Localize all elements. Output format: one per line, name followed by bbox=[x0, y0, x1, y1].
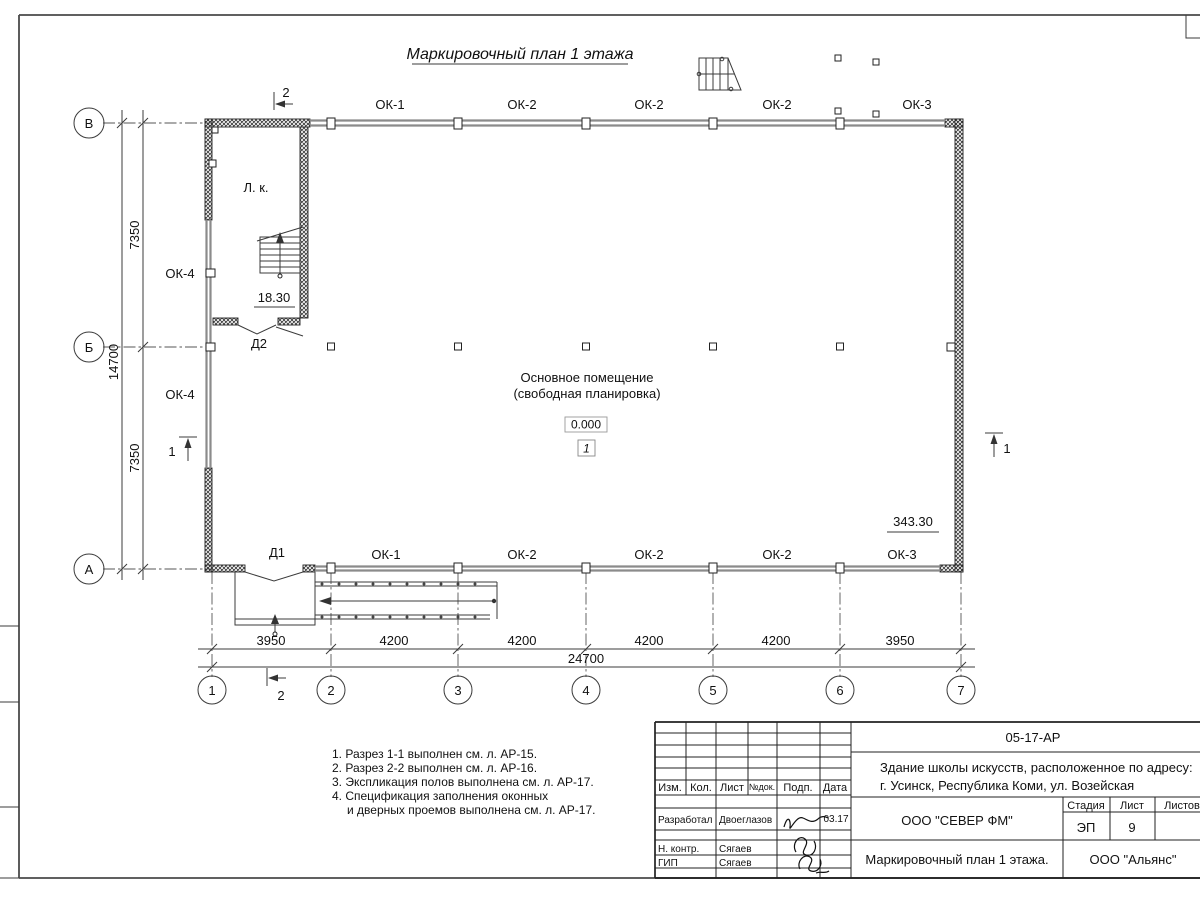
entrance-ramp bbox=[315, 582, 497, 619]
svg-text:В: В bbox=[85, 116, 94, 131]
section-mark-1-left: 1 bbox=[168, 437, 197, 461]
svg-text:1: 1 bbox=[168, 444, 175, 459]
tb-sheet-label: Лист bbox=[1120, 800, 1144, 812]
label-ok-top-3: ОК-2 bbox=[634, 97, 663, 112]
axis-bubble-b: Б bbox=[74, 332, 104, 362]
tb-sheet-value: 9 bbox=[1128, 820, 1135, 835]
tb-role-gip: ГИП bbox=[658, 858, 678, 869]
label-door-d2: Д2 bbox=[251, 336, 267, 351]
tb-contractor: ООО "Альянс" bbox=[1090, 852, 1177, 867]
room-label: Основное помещение (свободная планировка… bbox=[513, 370, 660, 456]
label-ok-top-1: ОК-1 bbox=[375, 97, 404, 112]
notes-block: 1. Разрез 1-1 выполнен см. л. АР-15. 2. … bbox=[332, 747, 595, 817]
label-stair-cage: Л. к. bbox=[243, 180, 268, 195]
tb-date-developer: 03.17 bbox=[823, 814, 848, 825]
dim-h-1: 3950 bbox=[257, 633, 286, 648]
dim-h-total: 24700 bbox=[568, 651, 604, 666]
wall-bottom-jamb bbox=[303, 565, 315, 572]
dim-7350-bottom: 7350 bbox=[127, 444, 142, 473]
label-ok4-lower: ОК-4 bbox=[165, 387, 194, 402]
note-3: 3. Экспликация полов выполнена см. л. АР… bbox=[332, 775, 594, 789]
label-ok-top-2: ОК-2 bbox=[507, 97, 536, 112]
room-number: 1 bbox=[583, 442, 590, 456]
glazing-top bbox=[310, 121, 945, 126]
tb-sheets-label: Листов bbox=[1164, 800, 1200, 812]
canopy-posts bbox=[835, 55, 879, 117]
entrance-porch bbox=[235, 572, 315, 636]
dim-h-3: 4200 bbox=[508, 633, 537, 648]
axis-bubble-7: 7 bbox=[947, 676, 975, 704]
svg-text:18.30: 18.30 bbox=[258, 290, 291, 305]
svg-text:6: 6 bbox=[836, 683, 843, 698]
wall-left-upper bbox=[205, 119, 212, 220]
tb-name-developer: Двоеглазов bbox=[719, 815, 772, 826]
v-dim-lines bbox=[122, 110, 143, 580]
ramp-arrow-icon bbox=[319, 597, 331, 605]
svg-text:1: 1 bbox=[1003, 441, 1010, 456]
svg-text:А: А bbox=[85, 562, 94, 577]
drawing-sheet: Маркировочный план 1 этажа В Б А 1 2 3 4… bbox=[0, 0, 1200, 900]
section-1-right-arrow-icon bbox=[991, 434, 998, 444]
section-2-top-arrow-icon bbox=[275, 101, 285, 108]
stair-bottom-wall-left bbox=[213, 318, 238, 325]
svg-text:343.30: 343.30 bbox=[893, 514, 933, 529]
door-d1-swing bbox=[245, 572, 303, 581]
title-block: Изм. Кол. Лист №док. Подп. Дата Разработ… bbox=[655, 722, 1200, 878]
note-5: и дверных проемов выполнена см. л. АР-17… bbox=[347, 803, 595, 817]
svg-text:Б: Б bbox=[85, 340, 94, 355]
tb-col-podp: Подп. bbox=[783, 782, 812, 794]
label-ok4-upper: ОК-4 bbox=[165, 266, 194, 281]
dim-7350-top: 7350 bbox=[127, 221, 142, 250]
note-4: 4. Спецификация заполнения оконных bbox=[332, 789, 548, 803]
dim-14700: 14700 bbox=[106, 344, 121, 380]
wall-left-lower bbox=[205, 468, 212, 572]
tb-col-ndok: №док. bbox=[749, 782, 775, 792]
tb-project-line1: Здание школы искусств, расположенное по … bbox=[880, 760, 1193, 775]
svg-text:2: 2 bbox=[282, 85, 289, 100]
section-mark-1-right: 1 bbox=[985, 433, 1011, 457]
tb-doc-code: 05-17-АР bbox=[1006, 730, 1061, 745]
label-ok-bot-5: ОК-3 bbox=[887, 547, 916, 562]
axis-bubble-v: В bbox=[74, 108, 104, 138]
svg-text:7: 7 bbox=[957, 683, 964, 698]
dim-h-6: 3950 bbox=[886, 633, 915, 648]
stair-partition-wall bbox=[300, 127, 308, 318]
tb-company: ООО "СЕВЕР ФМ" bbox=[901, 813, 1013, 828]
exterior-stair-symbol bbox=[697, 57, 741, 91]
corner-elevation-mark: 343.30 bbox=[887, 514, 939, 532]
window-bands bbox=[207, 121, 946, 571]
dim-h-4: 4200 bbox=[635, 633, 664, 648]
dim-h-5: 4200 bbox=[762, 633, 791, 648]
axis-bubble-6: 6 bbox=[826, 676, 854, 704]
label-door-d1: Д1 bbox=[269, 545, 285, 560]
label-ok-bot-2: ОК-2 bbox=[507, 547, 536, 562]
svg-text:2: 2 bbox=[277, 688, 284, 703]
section-mark-2-top: 2 bbox=[274, 85, 293, 110]
dim-h-2: 4200 bbox=[380, 633, 409, 648]
sheet-corner-box bbox=[1186, 15, 1200, 38]
label-ok-bot-3: ОК-2 bbox=[634, 547, 663, 562]
wall-bottom-left bbox=[205, 565, 245, 572]
tb-col-kol: Кол. bbox=[690, 782, 712, 794]
building-walls bbox=[205, 118, 963, 573]
svg-text:1: 1 bbox=[208, 683, 215, 698]
window-labels: ОК-1 ОК-2 ОК-2 ОК-2 ОК-3 ОК-1 ОК-2 ОК-2 … bbox=[165, 97, 931, 562]
room-name-line1: Основное помещение bbox=[520, 370, 653, 385]
drawing-title: Маркировочный план 1 этажа bbox=[406, 46, 633, 64]
tb-col-list: Лист bbox=[720, 782, 744, 794]
glazing-bottom bbox=[315, 567, 940, 571]
svg-text:4: 4 bbox=[582, 683, 589, 698]
stair-elevation-mark: 18.30 bbox=[254, 290, 295, 307]
note-1: 1. Разрез 1-1 выполнен см. л. АР-15. bbox=[332, 747, 537, 761]
floor-plan-drawing: Маркировочный план 1 этажа В Б А 1 2 3 4… bbox=[0, 0, 1200, 900]
axis-bubble-a: А bbox=[74, 554, 104, 584]
note-2: 2. Разрез 2-2 выполнен см. л. АР-16. bbox=[332, 761, 537, 775]
tb-role-developer: Разработал bbox=[658, 814, 713, 826]
axis-bubble-5: 5 bbox=[699, 676, 727, 704]
section-mark-2-bottom: 2 bbox=[267, 668, 286, 703]
tb-project-line2: г. Усинск, Республика Коми, ул. Возейска… bbox=[880, 778, 1134, 793]
section-2-bottom-arrow-icon bbox=[268, 675, 278, 682]
wall-bottom-right bbox=[940, 565, 963, 572]
label-ok-top-4: ОК-2 bbox=[762, 97, 791, 112]
column-markers bbox=[206, 118, 955, 573]
door-d2-swing bbox=[238, 325, 303, 336]
axis-bubble-2: 2 bbox=[317, 676, 345, 704]
tb-role-ncontrol: Н. контр. bbox=[658, 844, 699, 855]
room-level: 0.000 bbox=[571, 418, 601, 432]
tb-name-ncontrol: Сягаев bbox=[719, 844, 752, 855]
axis-bubble-3: 3 bbox=[444, 676, 472, 704]
tb-stage-value: ЭП bbox=[1077, 820, 1096, 835]
svg-text:5: 5 bbox=[709, 683, 716, 698]
axis-bubble-1: 1 bbox=[198, 676, 226, 704]
room-name-line2: (свободная планировка) bbox=[513, 386, 660, 401]
staircase bbox=[257, 227, 303, 278]
tb-col-izm: Изм. bbox=[658, 782, 682, 794]
label-ok-bot-4: ОК-2 bbox=[762, 547, 791, 562]
drawing-title-text: Маркировочный план 1 этажа bbox=[406, 46, 633, 63]
signature-developer bbox=[784, 817, 828, 829]
label-ok-bot-1: ОК-1 bbox=[371, 547, 400, 562]
tb-name-gip: Сягаев bbox=[719, 858, 752, 869]
label-ok-top-5: ОК-3 bbox=[902, 97, 931, 112]
wall-top-stair bbox=[205, 119, 310, 127]
doors bbox=[238, 325, 303, 581]
svg-text:3: 3 bbox=[454, 683, 461, 698]
tb-sheet-title: Маркировочный план 1 этажа. bbox=[865, 852, 1048, 867]
axis-bubble-4: 4 bbox=[572, 676, 600, 704]
tb-stage-label: Стадия bbox=[1067, 800, 1105, 812]
sheet-frame bbox=[0, 15, 1200, 878]
wall-right bbox=[955, 119, 963, 572]
svg-text:2: 2 bbox=[327, 683, 334, 698]
tb-col-data: Дата bbox=[823, 782, 848, 794]
margin-ticks bbox=[0, 626, 19, 878]
stair-bottom-wall-right bbox=[278, 318, 300, 325]
section-1-left-arrow-icon bbox=[185, 438, 192, 448]
